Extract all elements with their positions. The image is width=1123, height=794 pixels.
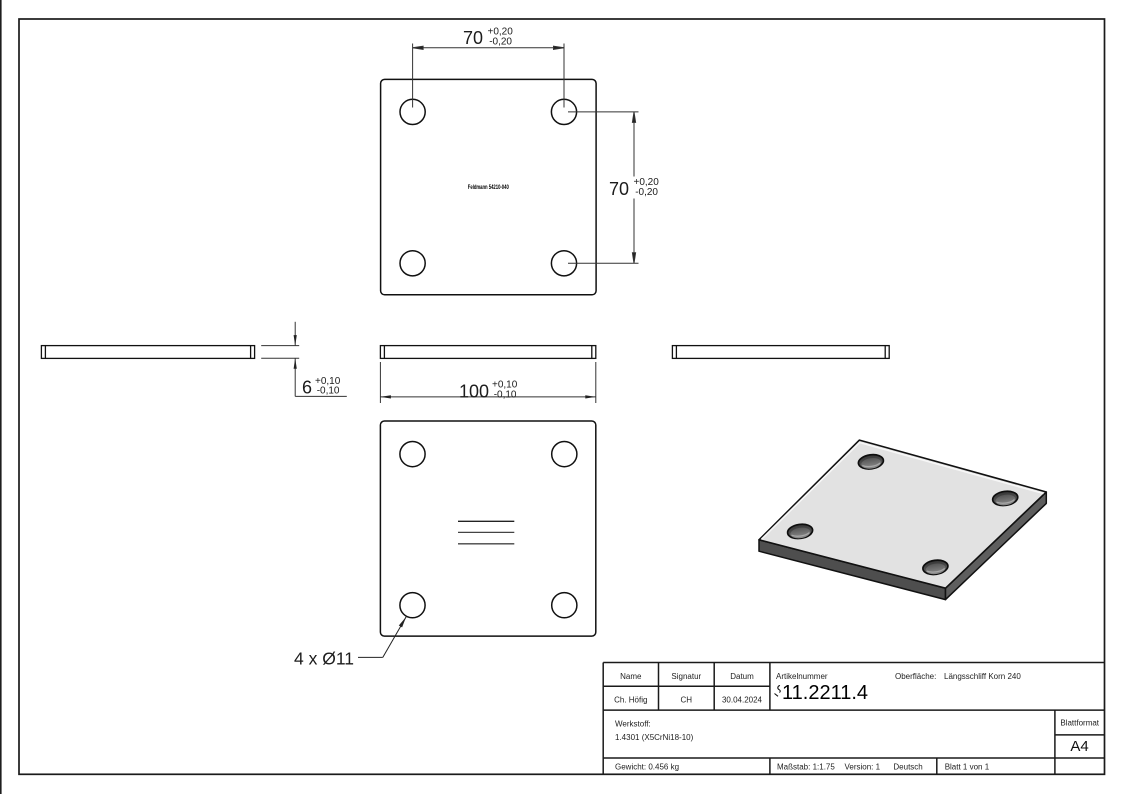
svg-text:Signatur: Signatur [671, 672, 701, 681]
svg-text:-0,10: -0,10 [494, 389, 517, 400]
svg-text:-0,20: -0,20 [489, 36, 512, 47]
svg-text:70: 70 [609, 179, 629, 199]
svg-text:Ch. Höfig: Ch. Höfig [614, 695, 647, 704]
svg-text:Blattformat: Blattformat [1060, 719, 1099, 728]
svg-text:6: 6 [302, 378, 312, 398]
svg-text:Feldmann 54210-040: Feldmann 54210-040 [468, 184, 509, 191]
svg-text:CH: CH [681, 695, 693, 704]
svg-text:Deutsch: Deutsch [893, 763, 922, 772]
svg-text:70: 70 [463, 28, 483, 48]
svg-text:Datum: Datum [730, 672, 754, 681]
svg-text:Version: 1: Version: 1 [845, 763, 881, 772]
svg-text:Längsschliff Korn 240: Längsschliff Korn 240 [944, 672, 1021, 681]
svg-text:Maßstab: 1:1.75: Maßstab: 1:1.75 [777, 763, 835, 772]
svg-text:100: 100 [459, 382, 489, 402]
svg-text:A4: A4 [1070, 738, 1088, 755]
svg-text:Werkstoff:: Werkstoff: [615, 720, 651, 729]
svg-text:-0,10: -0,10 [317, 386, 340, 397]
svg-text:11.2211.4: 11.2211.4 [782, 682, 868, 704]
svg-text:Name: Name [620, 672, 642, 681]
svg-text:Oberfläche:: Oberfläche: [895, 672, 936, 681]
svg-text:-0,20: -0,20 [635, 187, 658, 198]
svg-text:Blatt 1 von 1: Blatt 1 von 1 [945, 763, 990, 772]
svg-text:1.4301 (X5CrNi18-10): 1.4301 (X5CrNi18-10) [615, 733, 694, 742]
svg-text:4 x Ø11: 4 x Ø11 [294, 649, 354, 669]
svg-text:30.04.2024: 30.04.2024 [722, 695, 763, 704]
svg-text:Gewicht: 0.456 kg: Gewicht: 0.456 kg [615, 763, 679, 772]
svg-text:Artikelnummer: Artikelnummer [776, 672, 828, 681]
